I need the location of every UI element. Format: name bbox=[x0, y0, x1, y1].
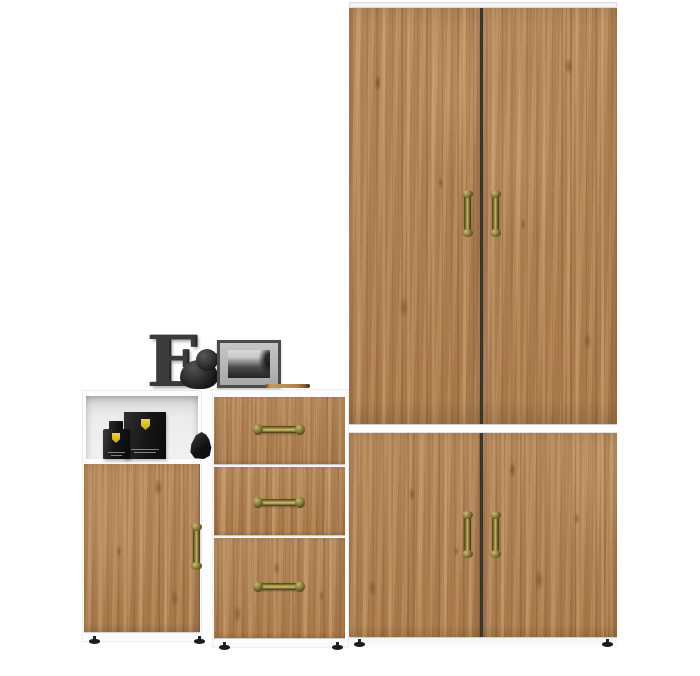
bottle-text-line bbox=[108, 452, 125, 453]
base-cabinet-left-handle bbox=[464, 514, 471, 555]
base-cabinet-door-divider bbox=[480, 433, 483, 637]
drawer-chest-foot bbox=[332, 645, 343, 650]
shelf-cabinet-foot bbox=[194, 639, 205, 644]
shelf-cabinet-door bbox=[84, 464, 200, 632]
drawer-chest-foot bbox=[219, 645, 230, 650]
shelf-cabinet-foot bbox=[89, 639, 100, 644]
wood-grain-knots bbox=[84, 464, 200, 632]
black-and-white-photo bbox=[228, 350, 270, 378]
base-cabinet-left-door bbox=[349, 433, 480, 637]
base-cabinet-foot bbox=[354, 642, 365, 647]
shield-logo-icon bbox=[112, 433, 120, 443]
photo-matte bbox=[220, 343, 278, 385]
wardrobe-left-handle bbox=[464, 193, 471, 234]
wardrobe-right-door bbox=[483, 8, 617, 424]
shelf-cabinet-plinth-line bbox=[84, 632, 200, 633]
wardrobe-door-divider bbox=[480, 8, 483, 424]
perfume-box bbox=[124, 412, 166, 459]
perfume-bottle bbox=[103, 429, 130, 459]
photo-frame bbox=[217, 340, 281, 388]
wardrobe-base-separator bbox=[349, 424, 617, 433]
shelf-cabinet-handle bbox=[193, 526, 200, 567]
shield-logo-icon bbox=[141, 419, 150, 430]
wood-grain-knots bbox=[483, 433, 617, 637]
wardrobe-right-handle bbox=[492, 193, 499, 234]
base-cabinet-right-handle bbox=[492, 514, 499, 555]
pencil bbox=[265, 384, 310, 388]
box-text-line bbox=[131, 449, 159, 450]
product-photo-stage: E bbox=[0, 0, 700, 676]
drawer-top-handle bbox=[255, 426, 303, 433]
base-cabinet-panel-seam bbox=[575, 433, 576, 637]
drawer-bottom-handle bbox=[255, 583, 303, 590]
drawer-chest-plinth-line bbox=[214, 638, 345, 639]
wood-grain-knots bbox=[349, 433, 480, 637]
wood-grain-knots bbox=[483, 8, 617, 424]
wardrobe-left-door bbox=[349, 8, 480, 424]
elephant-head bbox=[196, 349, 218, 371]
drawer-middle-handle bbox=[255, 499, 303, 506]
base-cabinet-foot bbox=[602, 642, 613, 647]
wood-grain-knots bbox=[349, 8, 480, 424]
bottle-text-line bbox=[111, 455, 122, 456]
base-cabinet-plinth bbox=[350, 637, 617, 648]
base-cabinet-right-door bbox=[483, 433, 617, 637]
box-text-line bbox=[134, 452, 156, 453]
